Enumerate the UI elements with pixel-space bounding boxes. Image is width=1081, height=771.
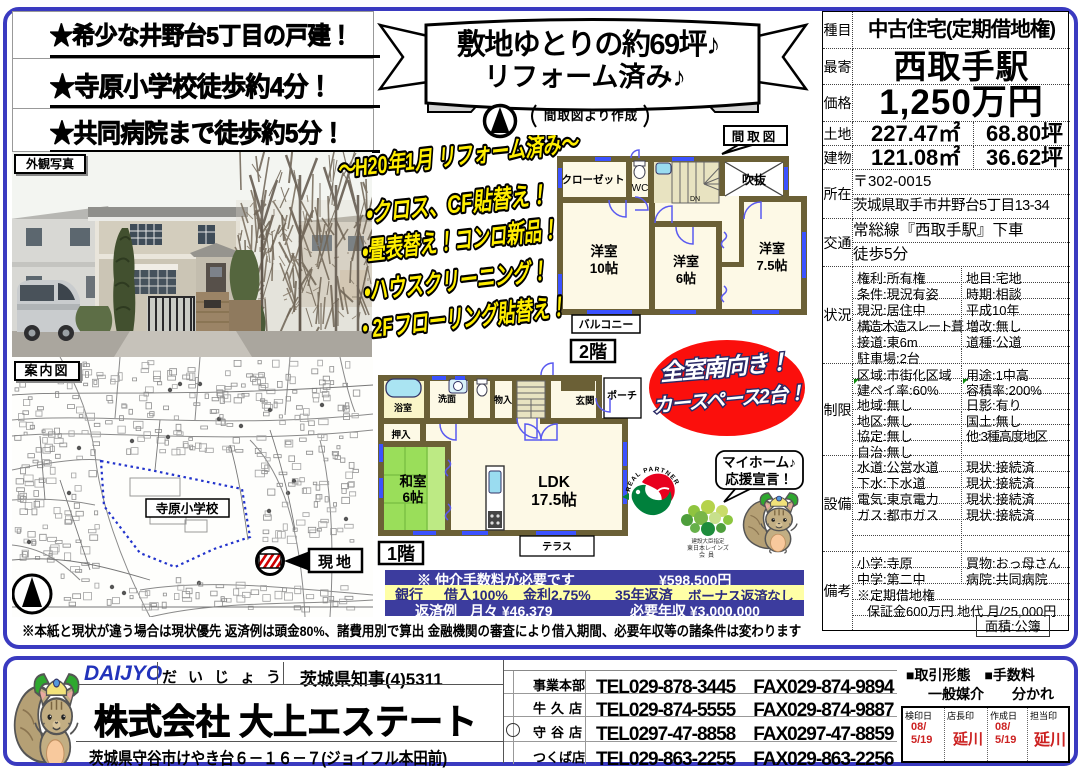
svg-text:DN: DN	[690, 196, 700, 203]
svg-text:吹抜: 吹抜	[742, 172, 767, 187]
svg-text:LDK: LDK	[538, 474, 571, 491]
svg-text:和室: 和室	[400, 473, 427, 489]
svg-text:WC: WC	[632, 183, 649, 194]
svg-text:リフォーム済み♪: リフォーム済み♪	[484, 62, 686, 92]
svg-text:6帖: 6帖	[402, 489, 424, 505]
svg-text:建設大臣指定: 建設大臣指定	[691, 537, 725, 545]
svg-text:東日本レインズ: 東日本レインズ	[687, 544, 729, 552]
svg-text:洋室: 洋室	[673, 254, 699, 269]
svg-text:10帖: 10帖	[590, 260, 619, 276]
svg-text:〜H20年1月 リフォーム済み〜: 〜H20年1月 リフォーム済み〜	[336, 135, 582, 184]
svg-text:浴室: 浴室	[394, 402, 412, 413]
svg-text:玄関: 玄関	[575, 395, 594, 407]
svg-text:テラス: テラス	[542, 541, 572, 553]
svg-text:応援宣言！: 応援宣言！	[725, 471, 793, 487]
svg-text:17.5帖: 17.5帖	[531, 490, 577, 509]
svg-text:敷地ゆとりの約69坪♪: 敷地ゆとりの約69坪♪	[457, 27, 719, 61]
svg-text:洗面: 洗面	[438, 393, 456, 404]
svg-text:寺原小学校: 寺原小学校	[156, 501, 219, 516]
svg-text:間取図より作成: 間取図より作成	[544, 108, 638, 123]
svg-text:マイホーム♪: マイホーム♪	[722, 455, 796, 470]
svg-text:1階: 1階	[387, 544, 415, 564]
svg-text:洋室: 洋室	[759, 241, 785, 256]
svg-text:洋室: 洋室	[591, 243, 619, 259]
svg-text:物入: 物入	[494, 394, 513, 405]
svg-text:現地: 現地	[318, 553, 354, 571]
svg-text:7.5帖: 7.5帖	[756, 258, 787, 273]
svg-text:会員: 会員	[699, 551, 717, 559]
svg-text:バルコニー: バルコニー	[579, 318, 634, 331]
svg-text:ポーチ: ポーチ	[607, 389, 637, 402]
svg-text:6帖: 6帖	[676, 271, 696, 286]
svg-text:押入: 押入	[391, 429, 411, 441]
